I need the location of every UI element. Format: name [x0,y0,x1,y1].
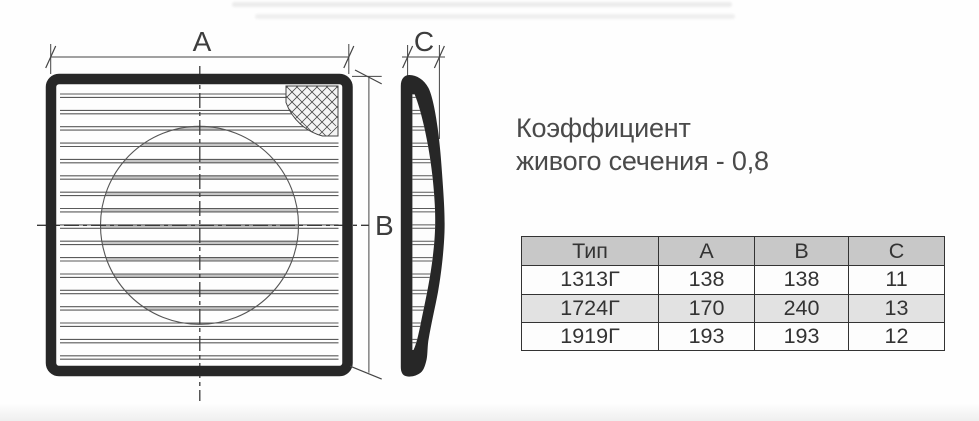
svg-text:A: A [193,26,212,57]
svg-text:C: C [414,26,434,57]
svg-text:B: B [375,210,394,241]
